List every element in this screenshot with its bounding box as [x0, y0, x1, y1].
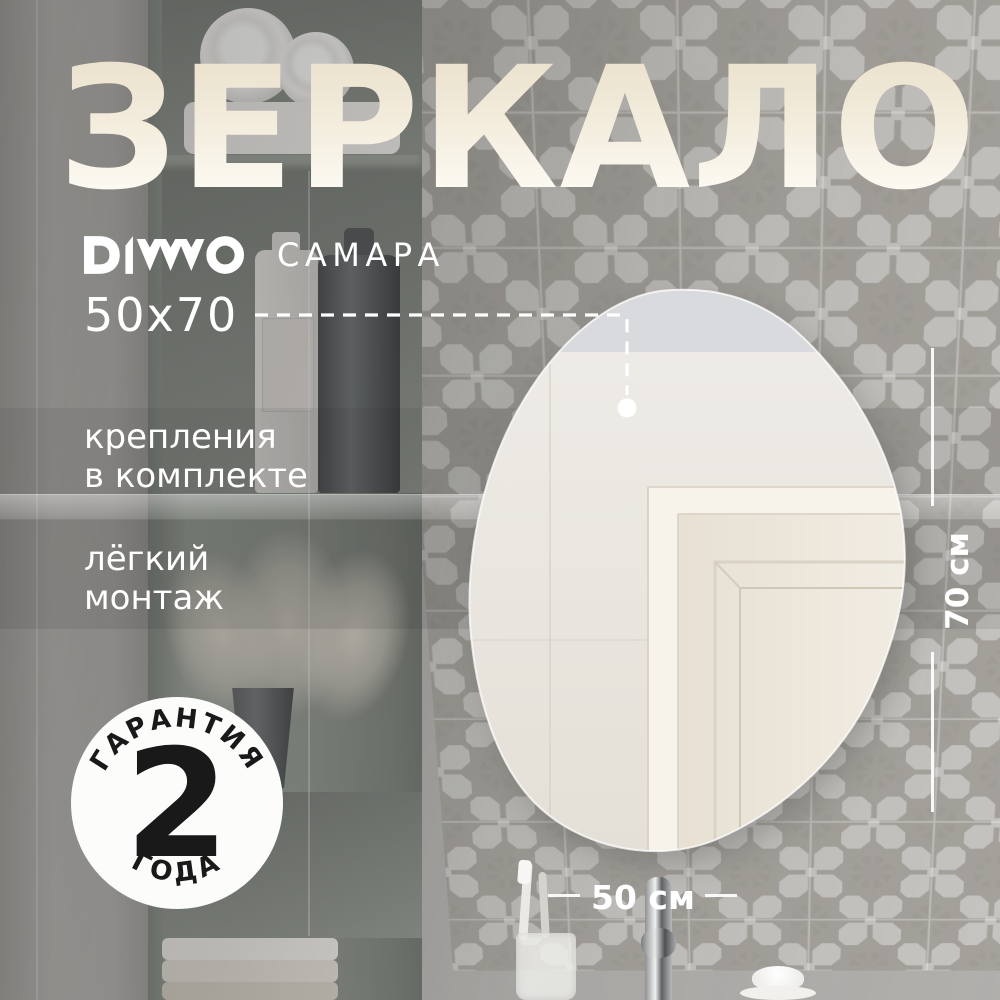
width-dash-right	[705, 894, 737, 897]
mirror-reflection-door-frame	[648, 487, 678, 870]
logo-letter-o	[211, 241, 239, 269]
folded-towel	[162, 938, 338, 960]
faucet-joint	[641, 928, 676, 958]
toothbrush-cup	[516, 933, 576, 1000]
feature-mounts-included: крепления в комплекте	[84, 418, 308, 496]
page-title: ЗЕРКАЛО	[58, 44, 977, 213]
white-plate	[740, 986, 816, 1000]
logo-chevron-icon	[178, 239, 204, 271]
toothbrush-head	[517, 860, 532, 885]
warranty-badge: ГАРАНТИЯ 2 ГОДА	[69, 695, 285, 915]
feature-line: крепления	[84, 418, 308, 457]
height-line-top	[931, 348, 934, 506]
logo-letter-d	[84, 236, 120, 274]
feature-line: монтаж	[84, 579, 224, 618]
brand-logo-diwo-icon	[84, 236, 244, 278]
logo-chevron-icon	[157, 239, 183, 271]
height-line-bottom	[931, 652, 934, 812]
feature-easy-install: лёгкий монтаж	[84, 540, 224, 618]
size-leader-line	[252, 300, 644, 426]
width-dimension-label: 50 см	[563, 878, 723, 917]
folded-towel	[162, 960, 338, 982]
dotted-leader	[255, 315, 627, 395]
product-size: 50x70	[84, 288, 238, 342]
product-model: САМАРА	[277, 236, 445, 274]
leader-dot	[618, 399, 637, 418]
height-dimension-label: 70 см	[942, 501, 974, 661]
feature-line: в комплекте	[84, 457, 308, 496]
product-card: ЗЕРКАЛО САМАРА 50x70 крепления в комплек…	[0, 0, 1000, 1000]
feature-line: лёгкий	[84, 540, 224, 579]
logo-letter-i	[125, 236, 133, 274]
logo-chevron-icon	[137, 239, 163, 271]
folded-towel	[162, 982, 338, 1000]
